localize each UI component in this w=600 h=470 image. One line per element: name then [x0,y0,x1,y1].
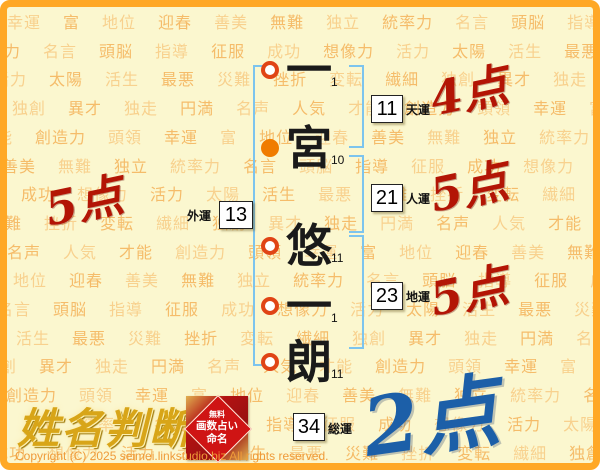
name-kanji: 宮 [285,125,333,171]
background-word: 頭脳 [99,38,133,62]
background-word: 独走 [464,325,498,349]
background-word: 活生 [16,325,50,349]
stroke-count: 11 [331,367,343,381]
background-word: 幸運 [504,353,538,377]
char-marker[interactable] [261,297,279,315]
background-word: 指導 [155,38,189,62]
background-word: 富 [560,353,577,377]
copyright-text: Copyright (C) 2025 seimei.linkstudio.biz… [15,449,328,463]
name-char-row: 一1 [261,47,347,93]
background-word: 幸運 [533,95,567,119]
seal-line-2: 画数占い [196,420,238,433]
background-word: 才能 [548,210,582,234]
background-word-row: 幸運富地位迎春善美無難独立統率力名言頭脳指導征服 [7,9,593,33]
background-word: 最悪 [564,38,593,62]
background-word: 迎春 [69,267,103,291]
background-word: 災難 [128,325,162,349]
chiun-label: 地運 [406,288,430,305]
chiun-value-box: 23 [371,282,403,310]
background-word: 統率力 [510,382,561,406]
background-word: 人気 [63,239,97,263]
background-word: 迎春 [158,9,192,33]
background-word: 異才 [408,325,442,349]
background-word: 征服 [534,267,568,291]
background-word: 富 [63,9,80,33]
background-word: 異才 [68,95,102,119]
background-word: 独立 [114,153,148,177]
name-char-row: 宮10 [261,125,347,171]
seal-line-1: 無料 [209,410,225,420]
souun-score: 2点 [358,370,503,468]
background-word: 地位 [13,267,47,291]
background-word: 幸運 [7,9,41,33]
background-word: 頭領 [108,124,142,148]
background-word: 挫折 [184,325,218,349]
background-word: 災難 [217,66,251,90]
souun-value-box: 34 [293,413,325,441]
name-char-row: 一1 [261,283,347,329]
background-word: 統率力 [539,124,590,148]
seal-line-3: 命名 [207,433,228,446]
background-word: 活生 [105,66,139,90]
background-word: 才能 [7,124,13,148]
jinun-bracket [349,155,364,233]
background-word: 人気 [492,210,526,234]
background-word: 独立 [483,124,517,148]
background-word: 善美 [125,267,159,291]
background-word: 無難 [567,239,593,263]
background-word: 繊細 [513,440,547,464]
background-word: 災難 [7,210,22,234]
background-word: 最悪 [161,66,195,90]
background-word: 富 [589,95,593,119]
stroke-count: 1 [331,311,338,325]
background-word: 無難 [270,9,304,33]
background-word: 独走 [95,353,129,377]
background-word: 善美 [7,153,36,177]
background-word: 名声 [207,353,241,377]
background-word: 善美 [214,9,248,33]
name-kanji: 一 [285,283,333,329]
background-word: 太陽 [49,66,83,90]
char-marker[interactable] [261,61,279,79]
background-word: 名言 [43,38,77,62]
chiun-bracket [349,235,364,349]
background-word: 独立 [326,9,360,33]
background-word: 太陽 [452,38,486,62]
tenun-value-box: 11 [371,95,403,123]
background-word: 創造力 [35,124,86,148]
background-word: 統率力 [7,38,21,62]
background-word: 独創 [569,440,593,464]
background-word: 活力 [507,411,541,435]
background-word: 成功 [590,267,593,291]
background-word: 最悪 [72,325,106,349]
background-word: 成功 [221,296,255,320]
background-word: 無難 [181,267,215,291]
background-word: 無難 [427,124,461,148]
jinun-value-box: 21 [371,184,403,212]
background-word: 善美 [511,239,545,263]
background-word: 名言 [455,9,489,33]
name-char-row: 悠11 [261,223,347,269]
background-word: 頭脳 [53,296,87,320]
gaiun-label: 外運 [187,207,211,224]
background-word: 頭脳 [511,9,545,33]
site-logo[interactable]: 姓名判断 [17,395,193,456]
char-marker[interactable] [261,237,279,255]
name-kanji: 悠 [285,223,333,269]
background-word: 名言 [7,296,31,320]
background-word: 太陽 [563,411,593,435]
background-word: 征服 [211,38,245,62]
background-word: 繊細 [156,210,190,234]
jinun-label: 人運 [406,190,430,207]
background-word: 活力 [7,66,27,90]
background-word: 繊細 [385,66,419,90]
background-word: 征服 [165,296,199,320]
background-word: 独走 [124,95,158,119]
name-kanji: 一 [285,47,333,93]
stroke-count: 1 [331,75,338,89]
background-word: 円満 [380,210,414,234]
gaiun-value-box: 13 [219,201,253,229]
stroke-count: 11 [331,251,343,265]
background-word: 異才 [39,353,73,377]
background-word: 指導 [109,296,143,320]
background-word: 指導 [567,9,593,33]
background-word: 円満 [520,325,554,349]
tenun-bracket [349,65,364,148]
tenun-label: 天運 [406,101,430,118]
background-word: 才能 [119,239,153,263]
background-word: 独創 [12,95,46,119]
background-word: 最悪 [318,181,352,205]
background-word: 災難 [574,296,593,320]
background-word: 人気 [292,95,326,119]
background-word: 独走 [553,66,587,90]
background-word: 名声 [576,325,593,349]
name-kanji: 朗 [285,339,333,385]
background-word: 活力 [396,38,430,62]
background-word: 名言 [583,382,593,406]
background-word: 統率力 [170,153,221,177]
seimei-result-page: 幸運富地位迎春善美無難独立統率力名言頭脳指導征服統率力名言頭脳指導征服成功想像力… [0,0,600,470]
background-word: 最悪 [518,296,552,320]
background-word: 円満 [151,353,185,377]
souun-label: 総運 [328,420,352,437]
background-word: 繊細 [542,181,576,205]
background-word: 想像力 [523,153,574,177]
background-word: 独創 [7,353,17,377]
background-word: 名声 [7,239,41,263]
char-marker[interactable] [261,353,279,371]
background-word: 富 [220,124,237,148]
background-word: 幸運 [164,124,198,148]
stroke-count: 10 [331,153,344,167]
background-word: 善美 [371,124,405,148]
background-word: 地位 [102,9,136,33]
char-marker-selected[interactable] [261,139,279,157]
background-word: 迎春 [455,239,489,263]
background-word: 活力 [150,181,184,205]
background-word: 創造力 [175,239,226,263]
background-word: 活生 [508,38,542,62]
background-word: 地位 [399,239,433,263]
background-word: 円満 [180,95,214,119]
name-char-row: 朗11 [261,339,347,385]
background-word: 統率力 [382,9,433,33]
